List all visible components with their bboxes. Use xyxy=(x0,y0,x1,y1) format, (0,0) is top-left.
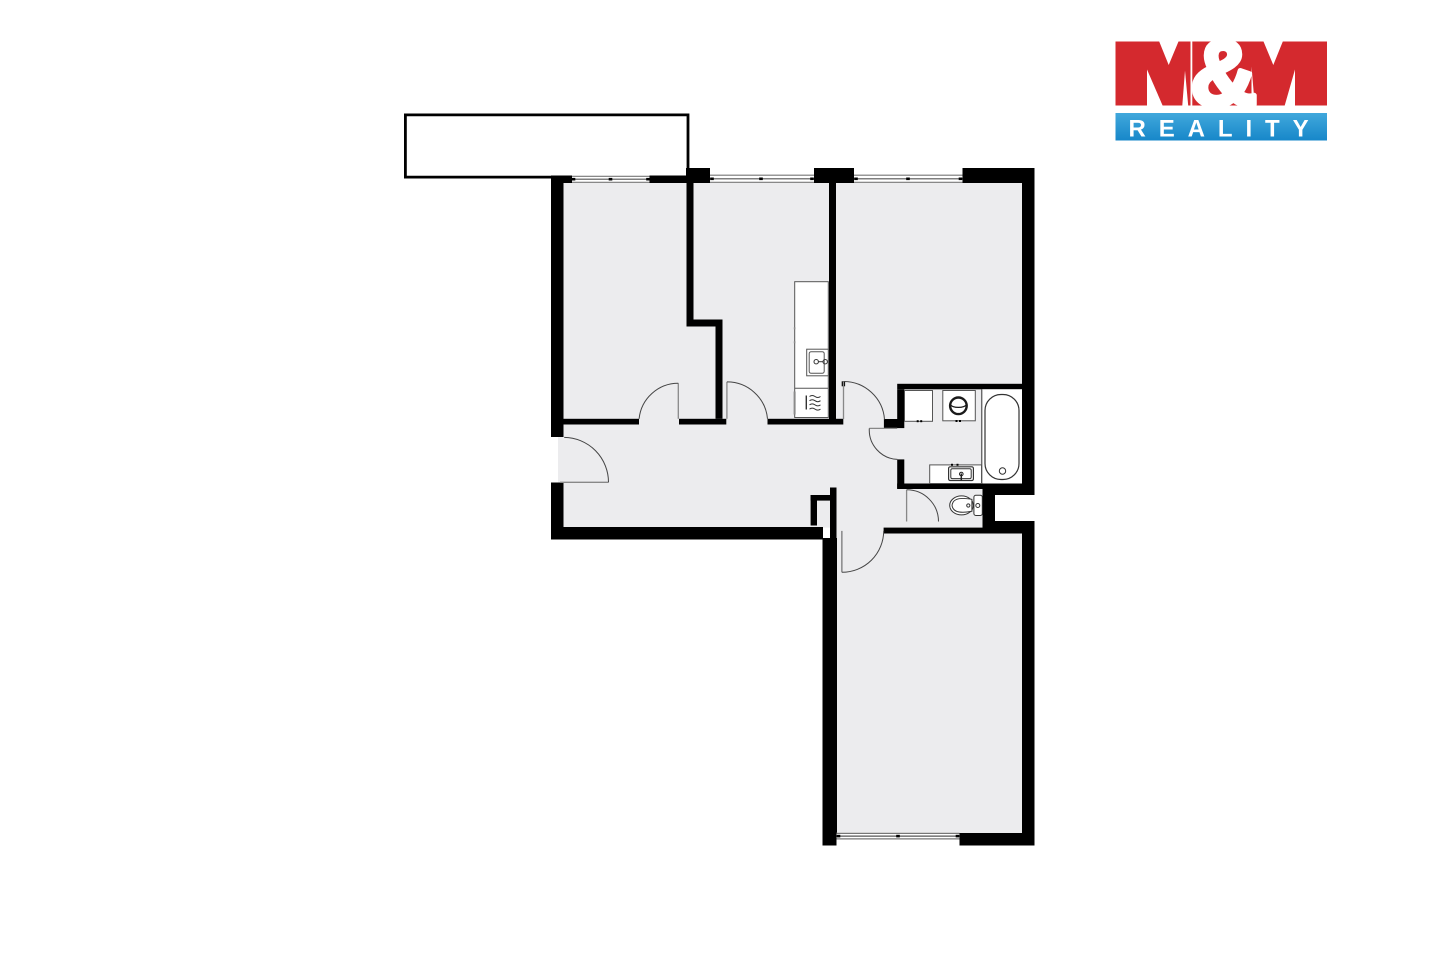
svg-text:REALITY: REALITY xyxy=(1129,116,1322,143)
svg-text:&: & xyxy=(1190,21,1257,125)
